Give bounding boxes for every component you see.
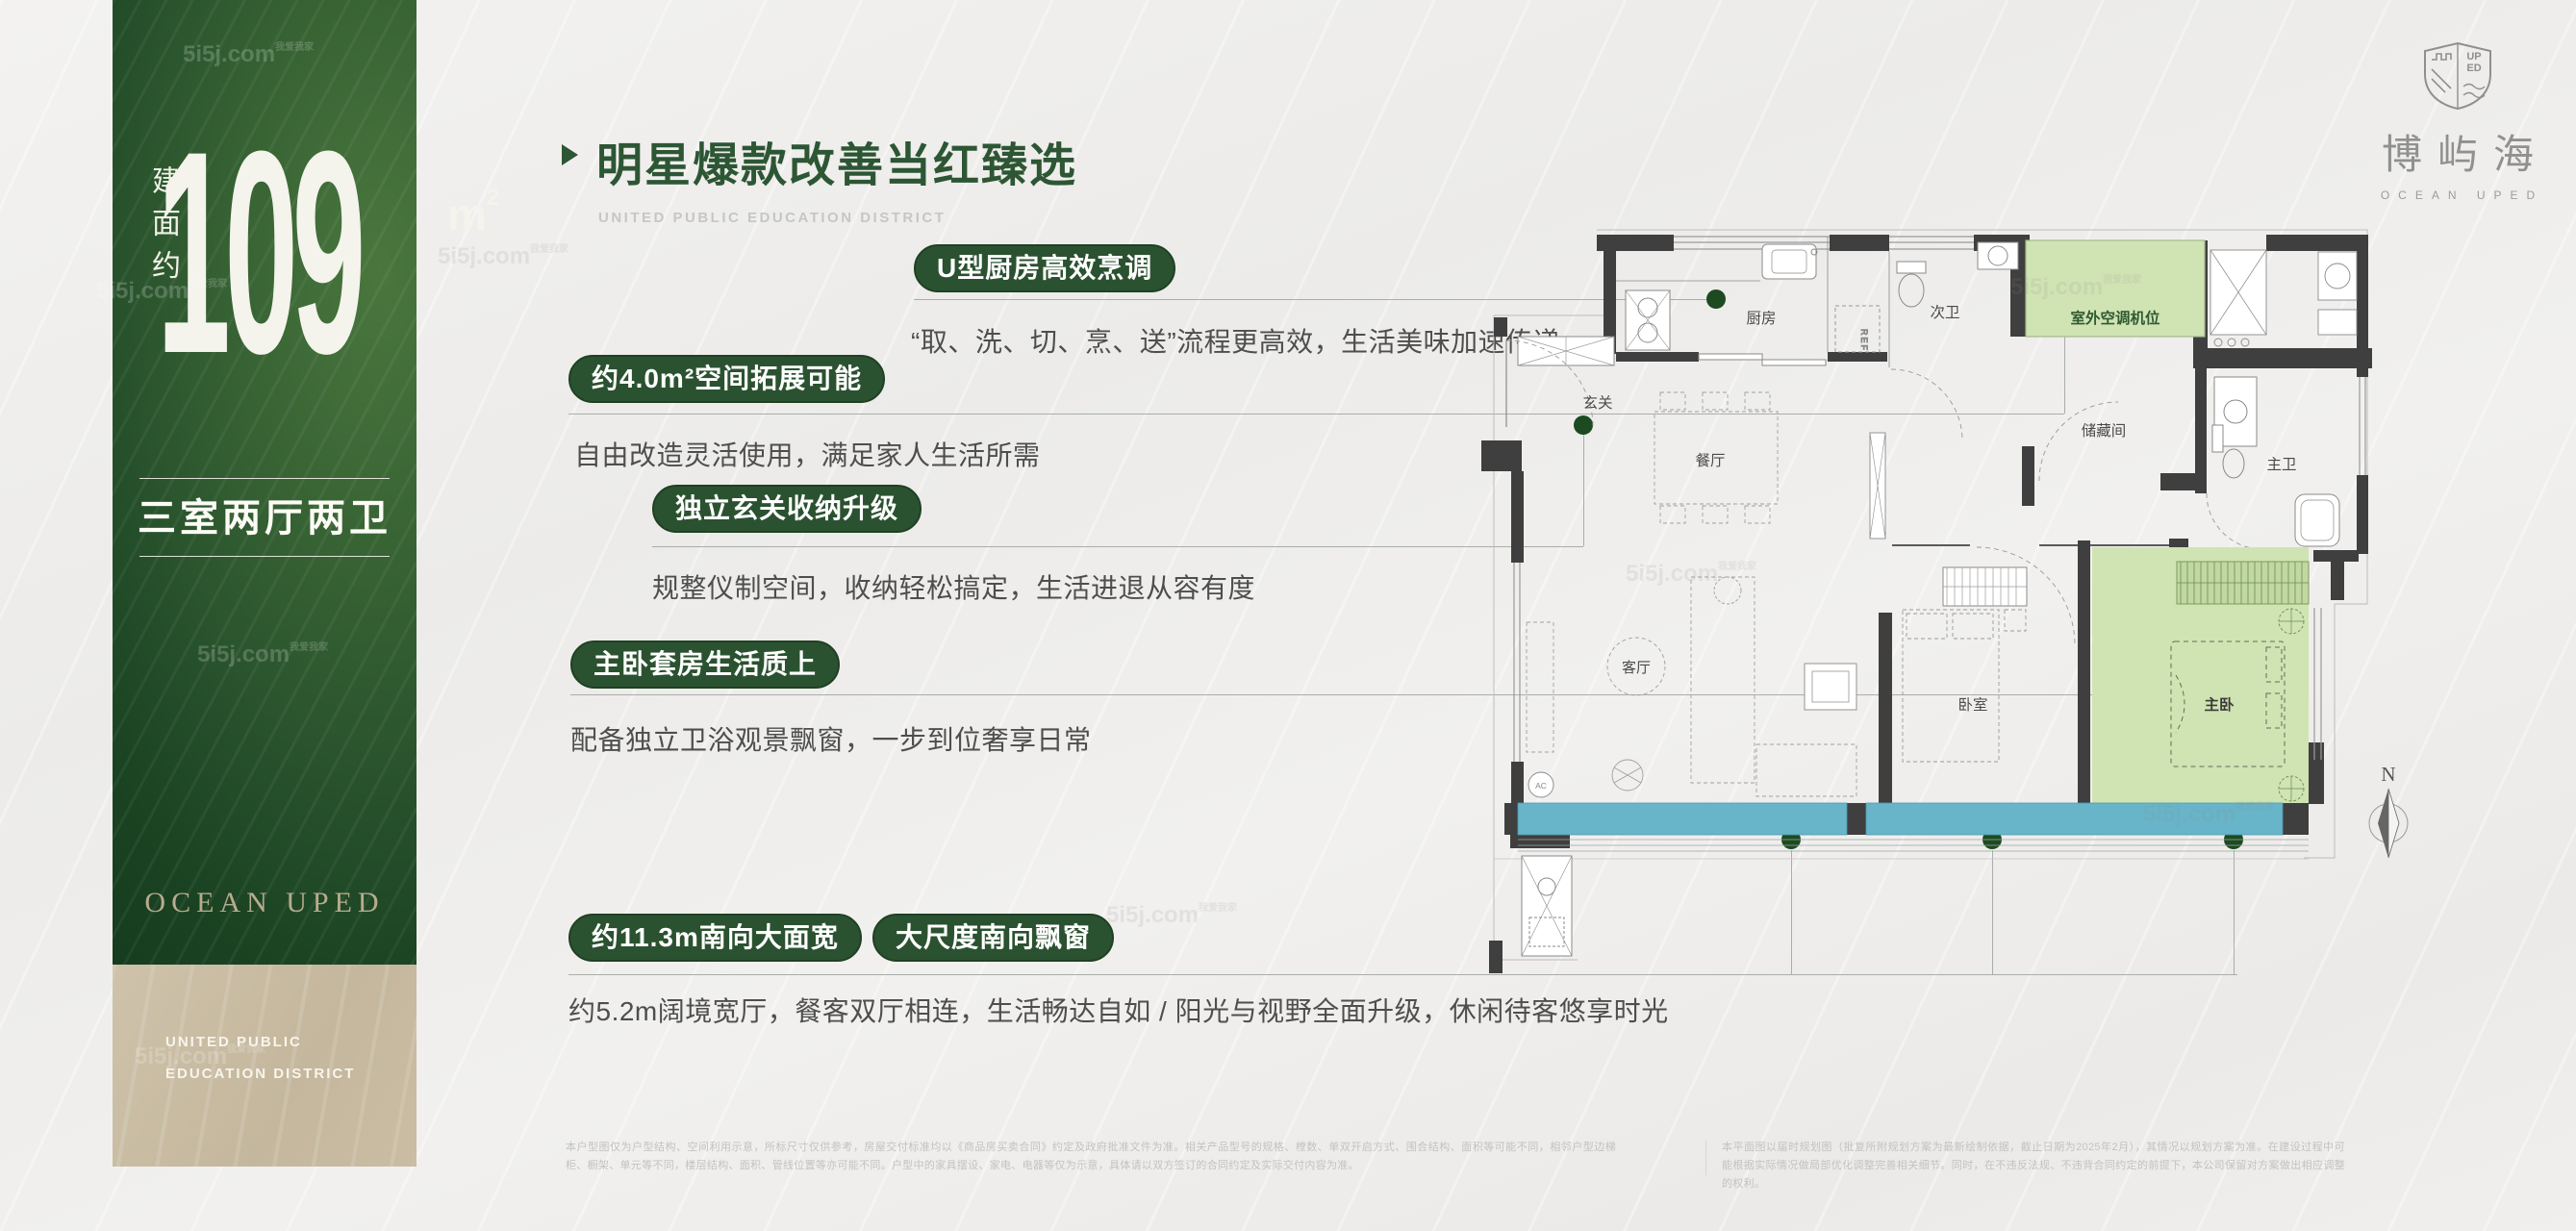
- bedroom-furniture: [1903, 567, 2027, 762]
- disclaimer-divider: [1705, 1141, 1706, 1175]
- leader-line: [652, 546, 1583, 547]
- logo-crest-icon: UP ED: [2420, 40, 2495, 110]
- fridge-label: REF: [1859, 329, 1869, 352]
- badge-master-suite: 主卧套房生活质上: [570, 641, 840, 689]
- room-label-dining: 餐厅: [1695, 452, 1725, 469]
- utility-strip: [2210, 250, 2357, 346]
- watermark: 5i5j.com我爱我家: [135, 1041, 265, 1070]
- room-label-living: 客厅: [1622, 660, 1651, 676]
- watermark: 5i5j.com我爱我家: [96, 275, 227, 305]
- room-label-storage: 储藏间: [2082, 422, 2127, 440]
- watermark: 5i5j.com我爱我家: [197, 639, 328, 668]
- divider-line: [139, 556, 390, 557]
- divider-line: [139, 478, 390, 479]
- kitchen-fixtures: REF: [1616, 237, 1880, 365]
- watermark: 5i5j.com我爱我家: [438, 240, 568, 270]
- poster-canvas: 建面约 109 m2 三室两厅两卫 OCEAN UPED UNITED PUBL…: [0, 0, 2576, 1231]
- body-master-suite: 配备独立卫浴观景飘窗，一步到位奢享日常: [570, 719, 1092, 758]
- badge-foyer: 独立玄关收纳升级: [652, 485, 922, 533]
- area-value: 109: [157, 108, 360, 396]
- bath2-fixtures: [1889, 242, 2018, 440]
- crest-text-ed: ED: [2466, 63, 2481, 74]
- green-gradient-block: 建面约 109 m2 三室两厅两卫 OCEAN UPED: [113, 0, 417, 965]
- room-label-kitchen: 厨房: [1746, 310, 1776, 327]
- area-unit-m: m: [447, 189, 487, 239]
- badge-expand: 约4.0m²空间拓展可能: [568, 355, 885, 403]
- left-area-panel: 建面约 109 m2 三室两厅两卫 OCEAN UPED UNITED PUBL…: [113, 0, 417, 1167]
- badge-bay-window: 大尺度南向飘窗: [872, 914, 1114, 962]
- room-label-bath2: 次卫: [1930, 304, 1959, 321]
- watermark: 5i5j.com我爱我家: [1106, 899, 1237, 929]
- badge-south-width: 约11.3m南向大面宽: [568, 914, 862, 962]
- badge-kitchen: U型厨房高效烹调: [914, 244, 1175, 292]
- room-label-master-bath: 主卫: [2266, 456, 2296, 473]
- body-expand: 自由改造灵活使用，满足家人生活所需: [574, 435, 1041, 473]
- compass-icon: N: [2369, 763, 2408, 858]
- area-unit-sup: 2: [487, 185, 499, 211]
- living-furniture: [1527, 577, 1856, 797]
- disclaimer-right: 本平面图以届时规划图（批复所附规划方案为最新绘制依据，截止日期为2025年2月）…: [1722, 1139, 2345, 1193]
- room-label-master: 主卧: [2204, 695, 2235, 714]
- ac-unit-label: AC: [1535, 781, 1547, 791]
- watermark: 5i5j.com我爱我家: [2143, 798, 2274, 828]
- foyer-elements: [1506, 337, 1614, 427]
- disclaimer-left: 本户型图仅为户型结构、空间利用示意，所标尺寸仅供参考，房屋交付标准均以《商品房买…: [566, 1139, 1616, 1175]
- master-bedroom-area: 主卧: [2092, 547, 2309, 803]
- logo-name-en: OCEAN UPED: [2361, 188, 2554, 202]
- page-title: 明星爆款改善当红臻选: [596, 127, 1077, 194]
- room-label-ac-platform: 室外空调机位: [2070, 309, 2160, 327]
- page-subtitle: UNITED PUBLIC EDUCATION DISTRICT: [598, 210, 946, 226]
- layout-name: 三室两厅两卫: [113, 487, 417, 542]
- outdoor-fixture: [1522, 856, 1572, 956]
- heading-arrow-icon: [562, 144, 578, 165]
- room-label-foyer: 玄关: [1582, 394, 1612, 412]
- crest-text-up: UP: [2466, 51, 2481, 63]
- brand-name: OCEAN UPED: [113, 887, 417, 919]
- brand-logo: UP ED 博屿海 OCEAN UPED: [2361, 40, 2554, 202]
- watermark: 5i5j.com我爱我家: [2010, 271, 2141, 301]
- shaft: [1870, 433, 1885, 539]
- watermark: 5i5j.com我爱我家: [1626, 558, 1756, 588]
- body-foyer: 规整仪制空间，收纳轻松搞定，生活进退从容有度: [652, 567, 1255, 606]
- body-south: 约5.2m阔境宽厅，餐客双厅相连，生活畅达自如 / 阳光与视野全面升级，休闲待客…: [568, 991, 1669, 1029]
- area-unit: m2: [447, 185, 499, 240]
- compass-label: N: [2381, 763, 2395, 786]
- storage-door-arc: [2039, 402, 2118, 481]
- room-label-bedroom: 卧室: [1957, 696, 1987, 714]
- watermark: 5i5j.com我爱我家: [183, 38, 314, 68]
- leader-line: [568, 974, 2237, 975]
- floorplan-drawing: 室外空调机位 REF 厨房: [1462, 223, 2414, 973]
- logo-name-cn: 博屿海: [2361, 122, 2554, 181]
